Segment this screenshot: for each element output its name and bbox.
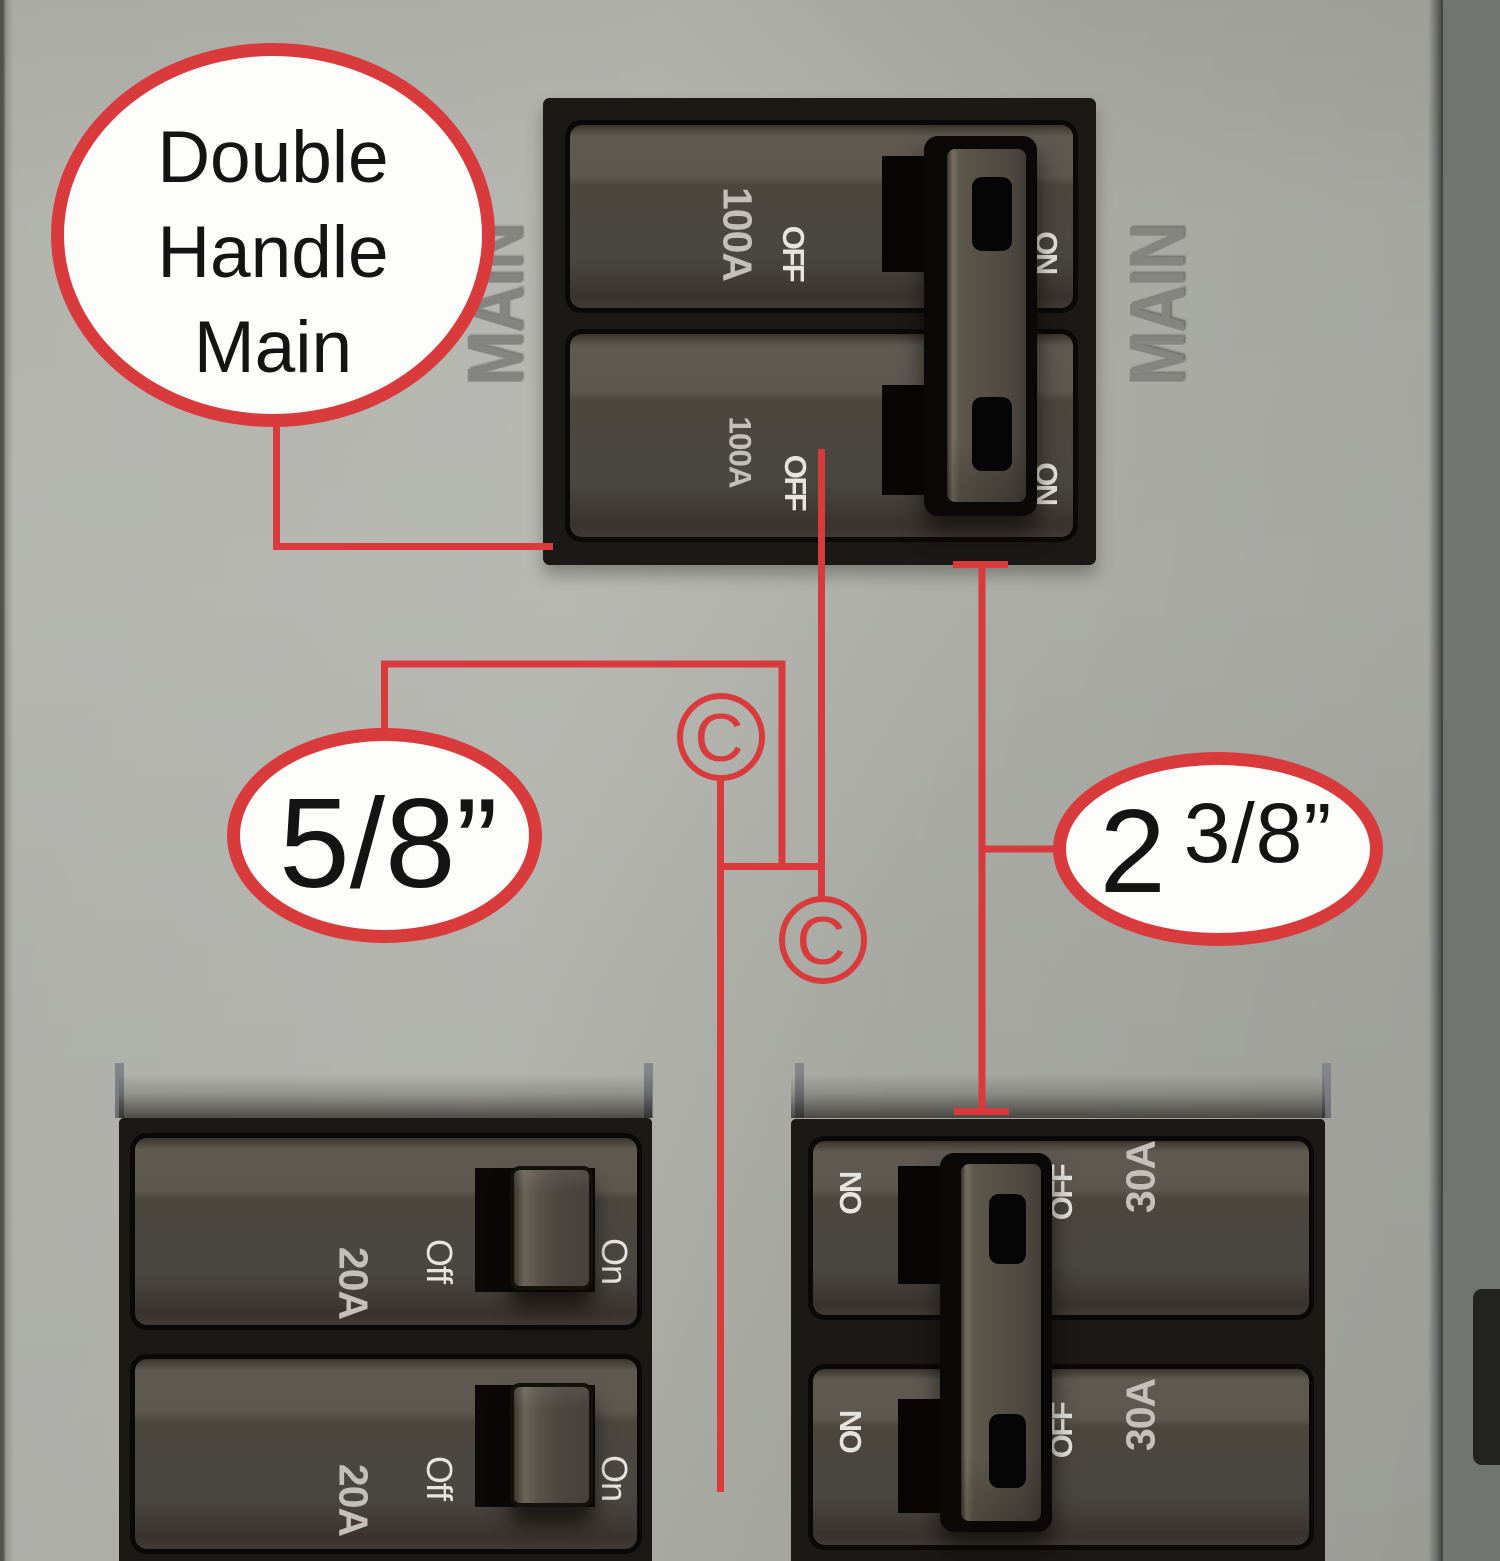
svg-text:C: C xyxy=(796,903,845,979)
svg-text:C: C xyxy=(694,700,743,776)
